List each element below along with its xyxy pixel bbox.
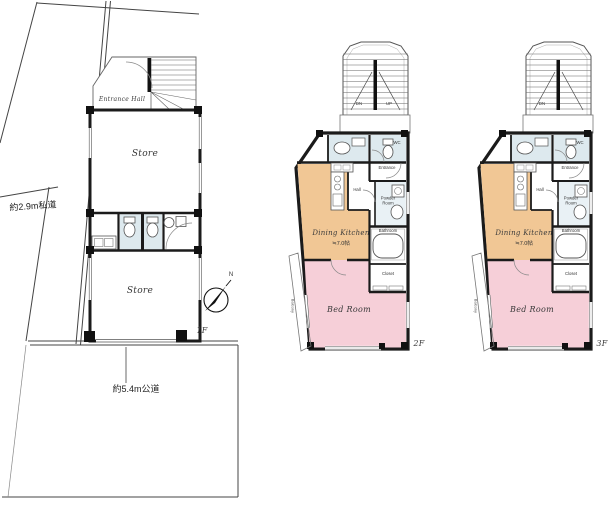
floor2-powder-room-label: Powder Room: [377, 197, 399, 206]
floorplan-page: 約2.9m私道 約5.4m公道 Entrance Hall Store Stor…: [0, 0, 614, 506]
compass-north-label: N: [224, 272, 238, 279]
floor2-label: 2F: [409, 340, 429, 349]
floor2-wc-label: WC: [390, 141, 404, 146]
floor3-powder-room-label: Powder Room: [560, 197, 582, 206]
entrance-hall-label: Entrance Hall: [94, 97, 150, 104]
floor2-bathroom-label: Bathroom: [374, 229, 403, 234]
floor2-bed-room-label: Bed Room: [313, 306, 385, 315]
floor3-dining-kitchen-label: Dining Kitchen: [494, 230, 554, 238]
floor2-balcony-label: Balcony: [290, 290, 294, 322]
floor2-entrance-label: Entrance: [372, 166, 403, 171]
floor3-hall-label: Hall: [530, 188, 550, 193]
floor3-dining-kitchen-size: ≒7.0帖: [500, 241, 548, 247]
floor2-stairs-up-label: UP: [381, 102, 398, 107]
floor1-label: 1F: [192, 327, 212, 336]
floor3-label: 3F: [592, 340, 612, 349]
store-upper-label: Store: [113, 150, 177, 160]
north-compass-icon: [204, 280, 231, 312]
floor2-stairs-down-label: DN: [351, 102, 368, 107]
floor3-labels: DN WC Entrance Hall Powder Room Dining K…: [468, 40, 603, 360]
floor2-labels: DN UP WC Entrance Hall Powder Room Dinin…: [285, 40, 420, 360]
floor2-dining-kitchen-size: ≒7.0帖: [317, 241, 365, 247]
floor2-closet-label: Closet: [374, 272, 403, 277]
floor3-wc-label: WC: [573, 141, 587, 146]
floor3-bathroom-label: Bathroom: [557, 229, 586, 234]
floor2-hall-label: Hall: [347, 188, 367, 193]
public-road-label: 約5.4m公道: [104, 385, 168, 395]
floor3-closet-label: Closet: [557, 272, 586, 277]
floor2-dining-kitchen-label: Dining Kitchen: [311, 230, 371, 238]
floor3-balcony-label: Balcony: [473, 290, 477, 322]
floor3-bed-room-label: Bed Room: [496, 306, 568, 315]
floor3-entrance-label: Entrance: [555, 166, 586, 171]
store-lower-label: Store: [108, 287, 172, 297]
floor3-stairs-down-label: DN: [534, 102, 551, 107]
